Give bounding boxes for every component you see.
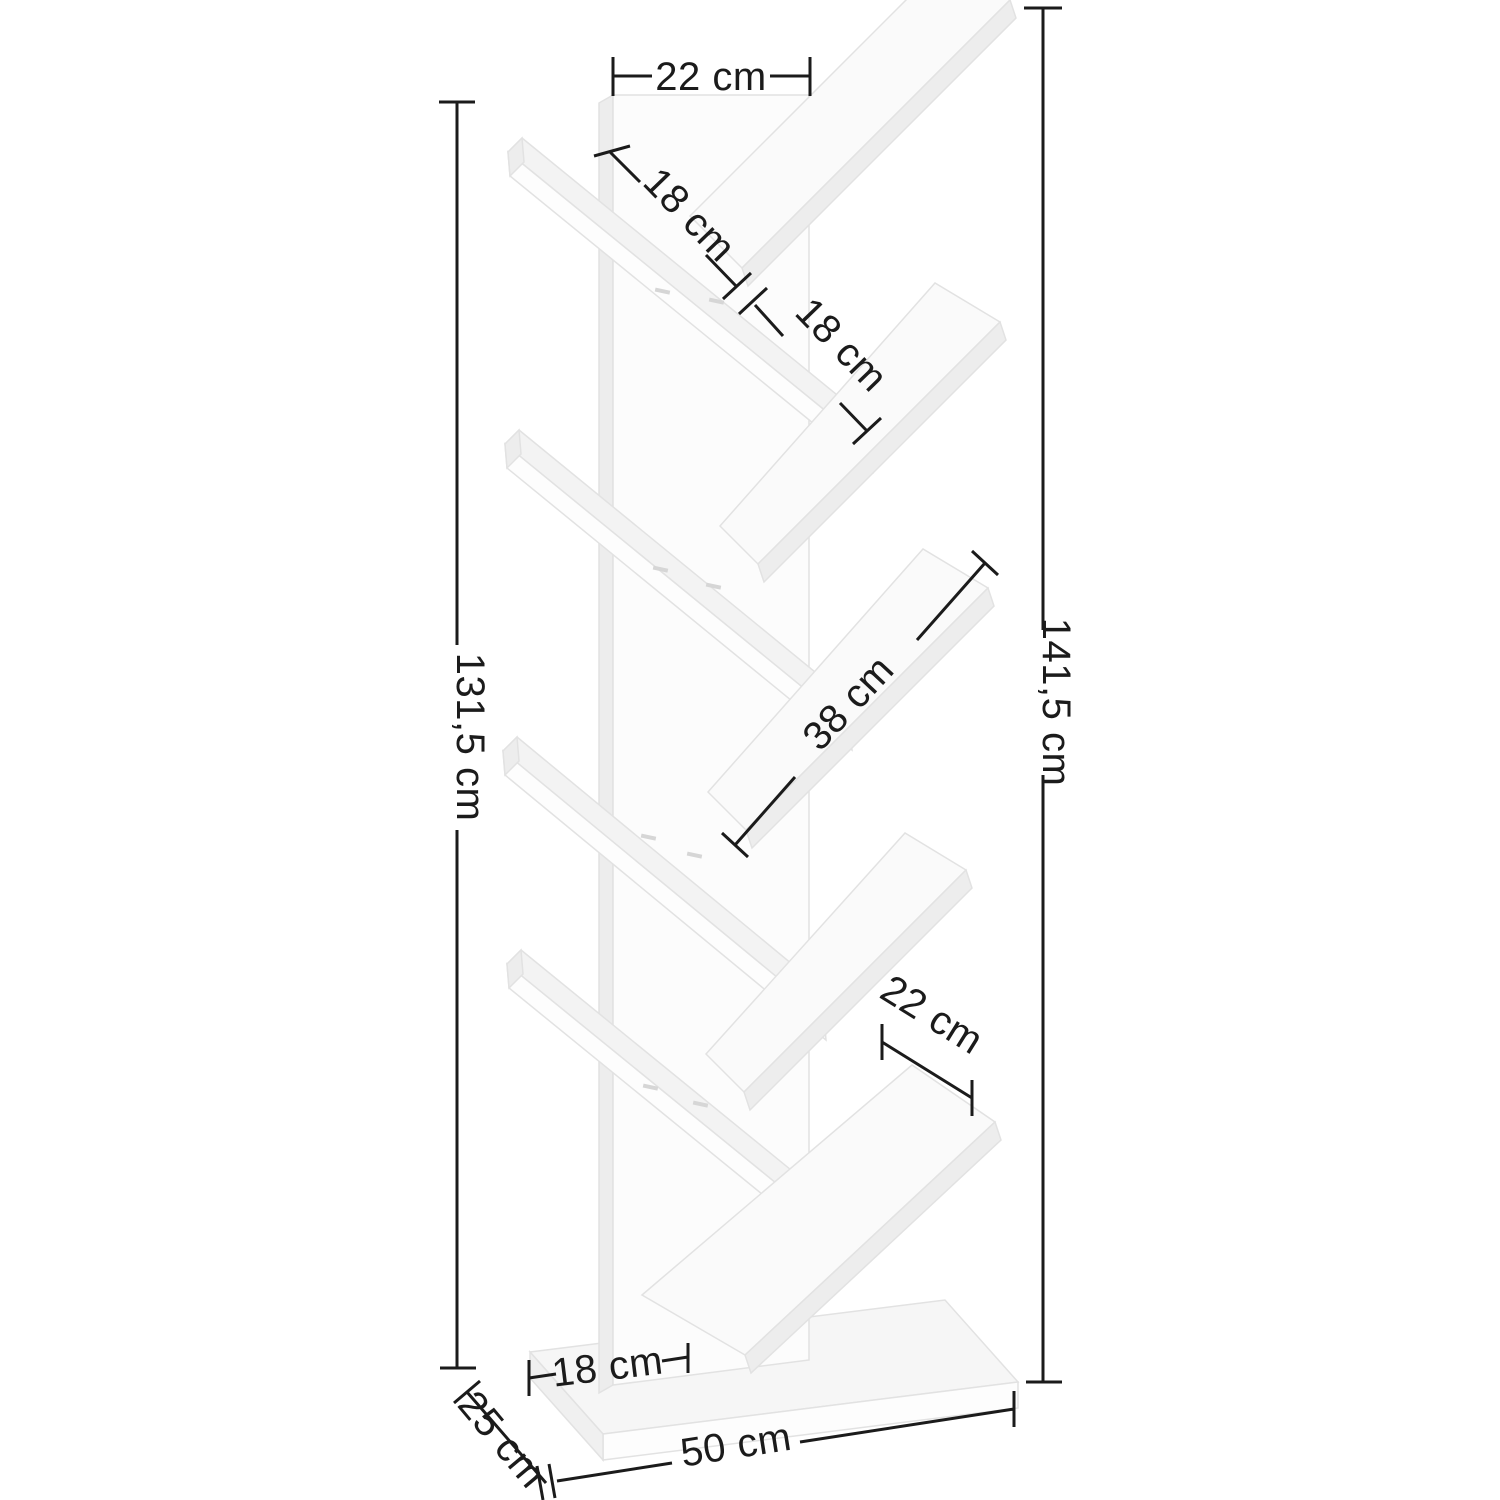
bookshelf-diagram-svg: 22 cm 18 cm 18 cm 38 cm 141,5 cm 131,5 c… [0,0,1500,1500]
product-dimension-diagram: 22 cm 18 cm 18 cm 38 cm 141,5 cm 131,5 c… [0,0,1500,1500]
dimension-height-right: 141,5 cm [1024,8,1078,1382]
dimension-base-depth: 25 cm [449,1381,555,1500]
spine-left-edge [599,95,613,1393]
dimension-label-base-depth: 25 cm [449,1383,554,1497]
dimension-label-height-right: 141,5 cm [1034,618,1078,787]
dimension-label-height-left: 131,5 cm [448,653,492,822]
bookshelf [503,0,1018,1460]
dimension-top-width: 22 cm [613,55,810,99]
dimension-height-left: 131,5 cm [439,102,492,1368]
dimension-label-top-width: 22 cm [655,55,766,99]
